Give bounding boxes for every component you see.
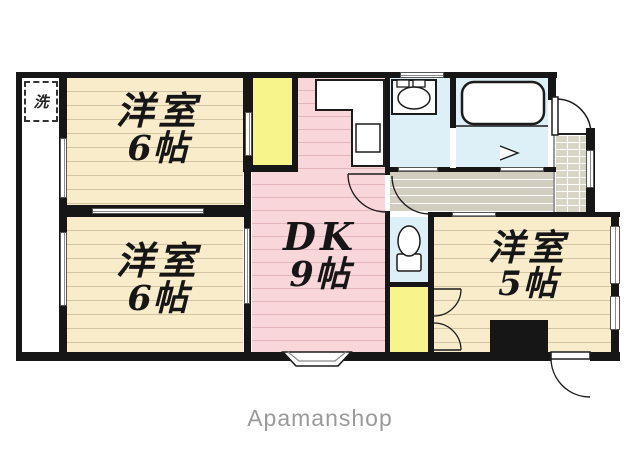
brand-watermark: Apamanshop: [0, 405, 640, 432]
storage-block: [490, 320, 548, 352]
front-door-leaf: [552, 97, 558, 135]
toilet-room: [390, 217, 428, 282]
room-5jo-label: 洋室 5帖: [488, 230, 568, 301]
wall-segment: [292, 72, 298, 172]
room5-door-swing: [551, 358, 590, 397]
wall-segment: [385, 282, 428, 287]
window: [60, 138, 67, 198]
dk-kitchen-area: [298, 78, 385, 172]
closet-lower: [390, 287, 428, 352]
window: [610, 296, 620, 330]
sliding-door: [398, 167, 438, 172]
door-opening: [450, 128, 456, 168]
laundry-label: 洗: [33, 91, 48, 112]
entrance-genkan: [553, 133, 590, 217]
bathroom: [456, 78, 548, 172]
door-opening: [394, 212, 424, 217]
wall-segment: [16, 352, 620, 361]
hallway: [390, 172, 553, 212]
room-6jo-upper-label: 洋室 6帖: [116, 92, 200, 166]
wall-segment: [248, 165, 292, 172]
window: [60, 232, 67, 306]
window: [610, 226, 620, 284]
washroom: [390, 78, 450, 172]
wall-segment: [428, 212, 434, 357]
wall-segment: [16, 72, 557, 78]
wall-segment: [385, 72, 390, 172]
closet-upper: [253, 78, 292, 165]
door-opening: [385, 175, 390, 211]
wall-segment: [16, 72, 22, 361]
wall-segment: [548, 72, 556, 100]
sliding-door: [452, 212, 496, 217]
window: [586, 150, 594, 188]
window: [400, 72, 444, 78]
laundry-space: 洗: [24, 81, 58, 122]
window: [245, 112, 252, 156]
dk-label: DK 9帖: [283, 218, 357, 292]
sliding-partition: [92, 208, 204, 214]
sliding-door: [244, 228, 250, 304]
door-opening: [551, 352, 590, 361]
sliding-door: [500, 167, 544, 172]
room-6jo-lower-label: 洋室 6帖: [116, 242, 200, 316]
floor-plan: 洗 洋室 6帖 洋室 6帖 DK 9帖 洋室 5帖 Apamanshop: [0, 0, 640, 455]
